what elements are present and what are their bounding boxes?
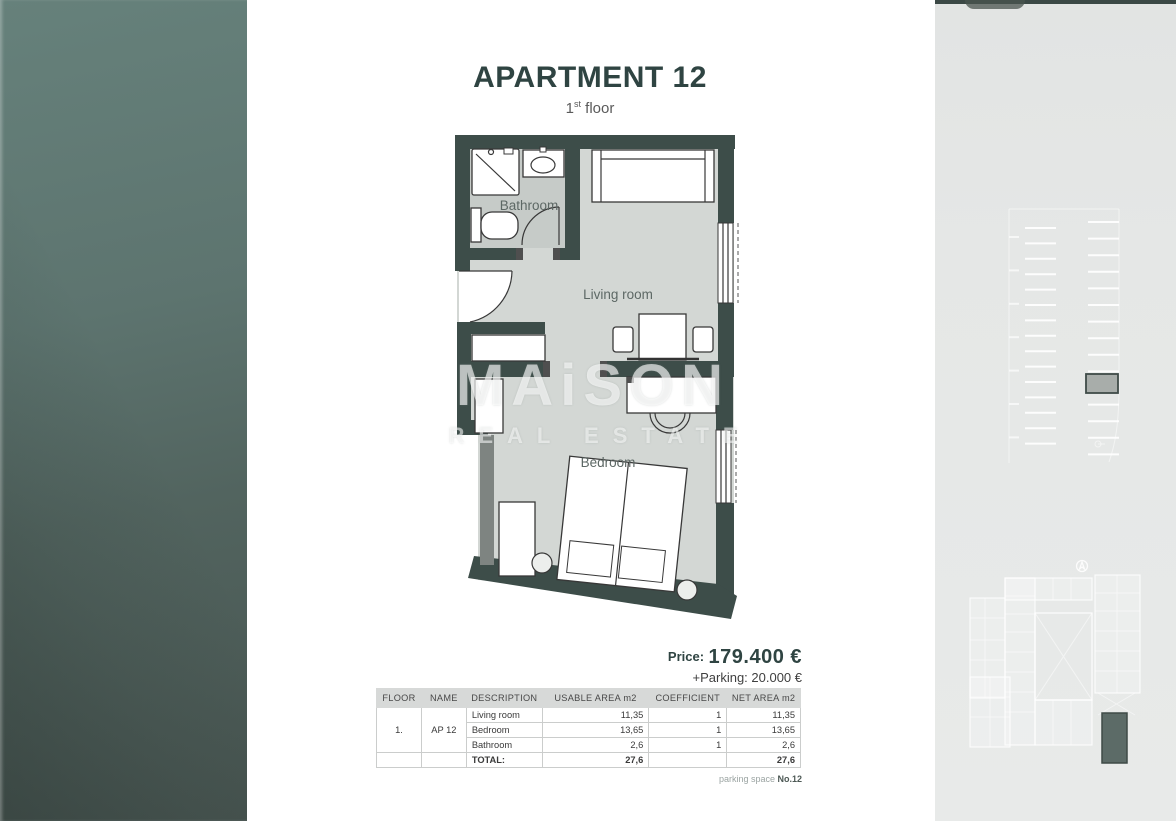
price-block: Price: 179.400 € +Parking: 20.000 € — [500, 646, 802, 685]
nightstand-right — [677, 580, 697, 600]
floor-subtitle: 1st floor — [438, 99, 742, 117]
total-label: TOTAL: — [466, 753, 542, 768]
page-title: APARTMENT 12 — [438, 60, 742, 96]
highlighted-parking-space — [1086, 374, 1118, 393]
floor-plan: Bathroom Living room Bedroom — [440, 124, 752, 628]
col-description: DESCRIPTION — [466, 689, 542, 708]
parking-space-note: parking space No.12 — [600, 774, 802, 784]
toilet — [471, 208, 518, 242]
bathroom-label: Bathroom — [500, 198, 559, 213]
kitchenette-desk — [472, 335, 545, 361]
name-cell: AP 12 — [421, 708, 466, 753]
wardrobe — [499, 502, 535, 576]
sofa — [592, 150, 714, 202]
col-coefficient: COEFFICIENT — [649, 689, 727, 708]
double-bed — [557, 456, 687, 592]
table-header-row: FLOOR NAME DESCRIPTION USABLE AREA m2 CO… — [377, 689, 801, 708]
col-usable-area: USABLE AREA m2 — [542, 689, 649, 708]
sink — [523, 147, 564, 177]
col-net-area: NET AREA m2 — [727, 689, 801, 708]
site-plan — [970, 561, 1140, 764]
window-right-upper — [718, 223, 738, 303]
table-total-row: TOTAL: 27,6 27,6 — [377, 753, 801, 768]
table-row: 1. AP 12 Living room 11,35 1 11,35 — [377, 708, 801, 723]
right-panel — [935, 0, 1176, 821]
closet-upper — [475, 379, 503, 433]
parking-space-number: No.12 — [777, 774, 802, 784]
total-net: 27,6 — [727, 753, 801, 768]
parking-price: +Parking: 20.000 € — [500, 670, 802, 685]
col-floor: FLOOR — [377, 689, 422, 708]
bedroom-label: Bedroom — [581, 455, 636, 470]
area-table: FLOOR NAME DESCRIPTION USABLE AREA m2 CO… — [376, 688, 801, 768]
living-room-label: Living room — [583, 287, 653, 302]
parking-map — [1009, 209, 1119, 463]
left-decorative-band — [0, 0, 247, 821]
col-name: NAME — [421, 689, 466, 708]
floor-cell: 1. — [377, 708, 422, 753]
price-value: 179.400 € — [709, 646, 802, 668]
highlighted-apartment-unit — [1102, 713, 1127, 763]
brochure-page: APARTMENT 12 1st floor — [0, 0, 1176, 821]
price-label: Price: — [668, 649, 704, 664]
total-usable: 27,6 — [542, 753, 649, 768]
parking-and-site-map — [935, 0, 1176, 821]
title-block: APARTMENT 12 1st floor — [438, 60, 742, 117]
shower — [472, 148, 519, 195]
nightstand-left — [532, 553, 552, 573]
